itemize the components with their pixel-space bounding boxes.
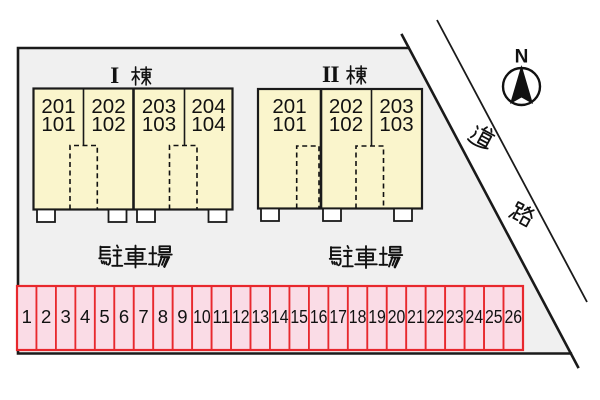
unit-number: 101: [41, 113, 75, 136]
parking-space-number: 3: [61, 306, 71, 327]
road-label-char-michi: [467, 121, 496, 150]
parking-space-number: 21: [407, 306, 425, 327]
building-1-numeral: I: [110, 63, 119, 88]
parking-space-number: 4: [80, 306, 90, 327]
parking-space-number: 25: [485, 306, 503, 327]
parking-space-number: 10: [193, 306, 211, 327]
building-1-foot: [137, 210, 155, 223]
road-label-char-ro: [509, 201, 536, 227]
unit-number: 103: [142, 113, 176, 136]
parking-space-number: 18: [349, 306, 367, 327]
building-1-foot: [37, 210, 55, 223]
building-2-numeral: II: [322, 62, 339, 87]
compass: N: [503, 47, 540, 106]
parking-space-number: 19: [368, 306, 386, 327]
parking-space-number: 5: [99, 306, 109, 327]
unit-number: 104: [191, 113, 225, 136]
parking-space-number: 17: [329, 306, 347, 327]
parking-space-number: 24: [466, 306, 484, 327]
building-1-foot: [209, 210, 227, 223]
parking-label-1-char-sha: [125, 246, 147, 268]
parking-space-number: 6: [119, 306, 129, 327]
parking-space-number: 9: [177, 306, 187, 327]
parking-space-number: 14: [271, 306, 289, 327]
parking-row: 1234567891011121314151617181920212223242…: [17, 286, 523, 350]
parking-space-number: 13: [251, 306, 269, 327]
unit-number: 103: [379, 113, 413, 136]
parking-space-number: 20: [388, 306, 406, 327]
site-plan-drawing: N I 201 101 202 102 203 103 204 104 II: [0, 0, 600, 400]
site-plan-page: N I 201 101 202 102 203 103 204 104 II: [0, 0, 600, 400]
building-2-foot: [261, 209, 279, 222]
building-2-foot: [394, 209, 412, 222]
parking-space-number: 8: [158, 306, 168, 327]
parking-space-number: 7: [138, 306, 148, 327]
unit-number: 102: [91, 113, 125, 136]
parking-space-number: 11: [213, 306, 231, 327]
compass-north-label: N: [515, 47, 529, 68]
parking-space-number: 16: [310, 306, 328, 327]
parking-label-2-char-sha: [355, 246, 377, 268]
parking-space-number: 15: [290, 306, 308, 327]
parking-space-number: 1: [22, 306, 32, 327]
building-2-foot: [323, 209, 341, 222]
parking-space-number: 26: [504, 306, 522, 327]
unit-number: 101: [272, 113, 306, 136]
parking-space-number: 23: [446, 306, 464, 327]
unit-number: 102: [329, 113, 363, 136]
parking-space-number: 22: [427, 306, 445, 327]
building-1-foot: [109, 210, 127, 223]
parking-space-number: 2: [41, 306, 51, 327]
parking-space-number: 12: [232, 306, 250, 327]
